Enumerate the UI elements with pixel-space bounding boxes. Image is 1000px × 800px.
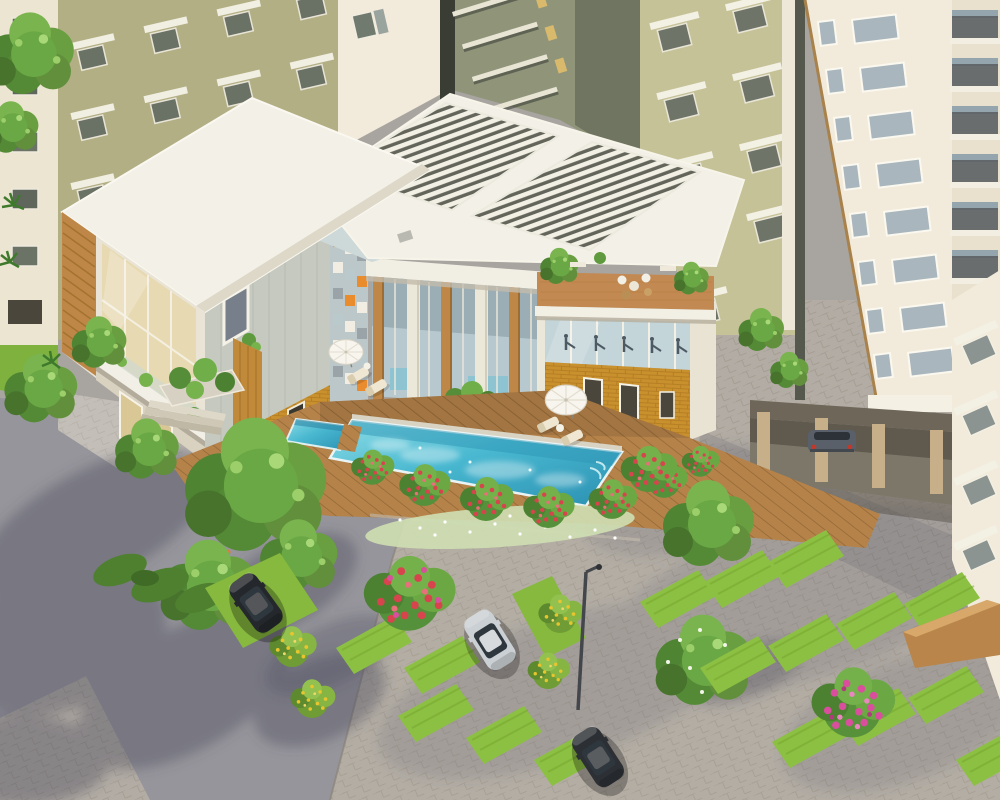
parked-car-under-building [808, 430, 856, 452]
side-table [556, 424, 564, 432]
architectural-render [0, 0, 1000, 800]
side-table [364, 363, 371, 370]
tower-gap [795, 0, 805, 400]
render-canvas [0, 0, 1000, 800]
